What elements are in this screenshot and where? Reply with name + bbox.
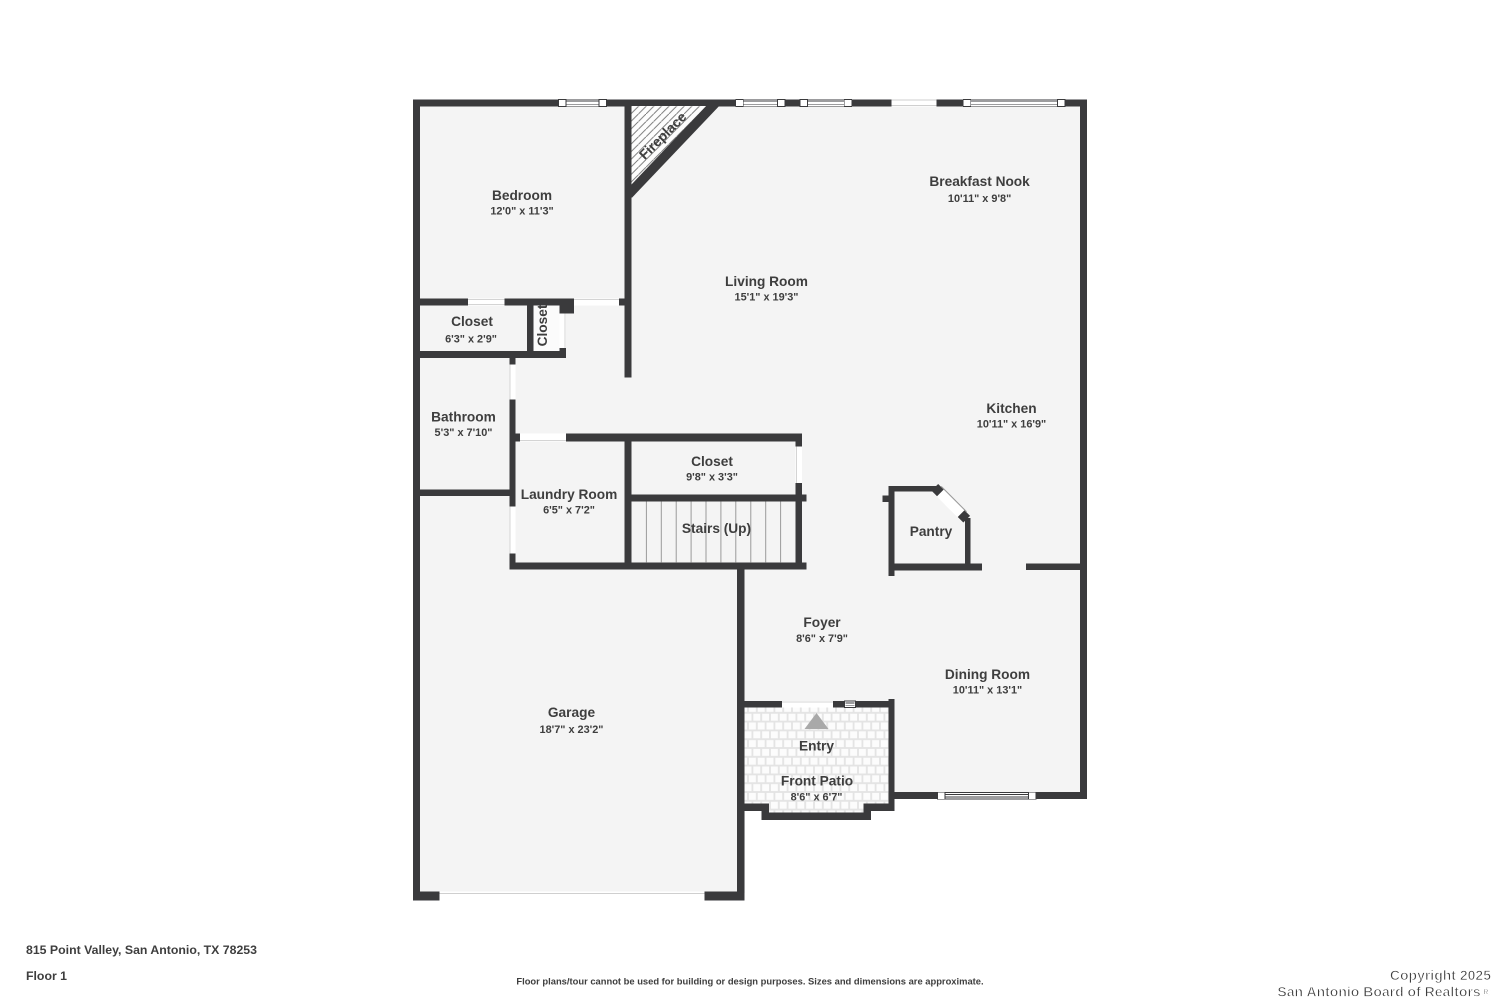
svg-text:Closet: Closet	[691, 454, 733, 469]
svg-text:Closet: Closet	[451, 314, 493, 329]
svg-text:Bedroom: Bedroom	[492, 188, 552, 203]
svg-text:Copyright 2025: Copyright 2025	[1390, 967, 1491, 983]
svg-text:Garage: Garage	[548, 705, 596, 720]
svg-text:18'7" x 23'2": 18'7" x 23'2"	[540, 724, 604, 736]
svg-text:10'11" x 13'1": 10'11" x 13'1"	[953, 685, 1022, 697]
svg-text:8'6" x 6'7": 8'6" x 6'7"	[791, 792, 843, 804]
svg-text:Floor plans/tour cannot be use: Floor plans/tour cannot be used for buil…	[516, 976, 983, 987]
svg-text:Entry: Entry	[799, 739, 834, 754]
svg-text:8'6" x 7'9": 8'6" x 7'9"	[796, 633, 848, 645]
svg-text:San Antonio Board of Realtors®: San Antonio Board of Realtors®	[1277, 984, 1491, 1000]
svg-text:Floor 1: Floor 1	[26, 969, 67, 983]
svg-text:Front Patio: Front Patio	[781, 774, 853, 789]
svg-text:5'3" x 7'10": 5'3" x 7'10"	[435, 427, 493, 439]
svg-text:6'3" x 2'9": 6'3" x 2'9"	[445, 334, 497, 346]
svg-text:9'8" x 3'3": 9'8" x 3'3"	[686, 472, 738, 484]
svg-text:815 Point Valley, San Antonio,: 815 Point Valley, San Antonio, TX 78253	[26, 943, 257, 957]
svg-text:15'1" x 19'3": 15'1" x 19'3"	[735, 292, 799, 304]
svg-text:Laundry Room: Laundry Room	[521, 487, 618, 502]
svg-text:12'0" x 11'3": 12'0" x 11'3"	[490, 206, 553, 218]
svg-text:Breakfast Nook: Breakfast Nook	[929, 174, 1030, 189]
svg-text:Living Room: Living Room	[725, 274, 808, 289]
svg-text:Dining Room: Dining Room	[945, 667, 1030, 682]
svg-text:10'11" x 9'8": 10'11" x 9'8"	[948, 193, 1011, 205]
svg-text:Pantry: Pantry	[910, 524, 953, 539]
svg-text:10'11" x 16'9": 10'11" x 16'9"	[977, 419, 1046, 431]
svg-text:Kitchen: Kitchen	[986, 401, 1036, 416]
svg-text:Closet: Closet	[535, 304, 550, 346]
svg-text:Stairs (Up): Stairs (Up)	[682, 521, 751, 536]
svg-text:Bathroom: Bathroom	[431, 410, 496, 425]
svg-text:6'5" x 7'2": 6'5" x 7'2"	[543, 505, 595, 517]
svg-text:Foyer: Foyer	[803, 615, 841, 630]
